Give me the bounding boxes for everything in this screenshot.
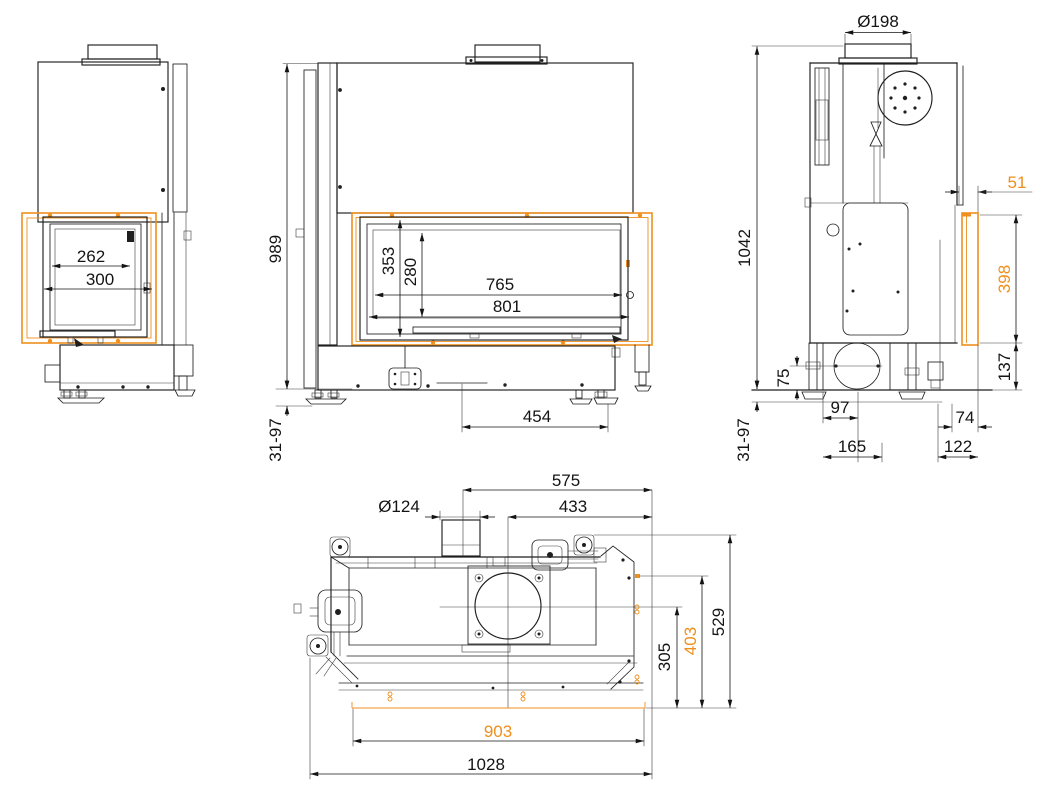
dim-top-frame-depth: 403 <box>681 627 700 655</box>
leveling-foot <box>306 399 346 404</box>
dim-top-total-width: 1028 <box>467 755 505 774</box>
door-handle <box>127 231 134 242</box>
dim-right-frame-height: 398 <box>995 265 1014 293</box>
dim-front-opening-height: 353 <box>379 247 398 275</box>
flue-stub <box>845 44 911 58</box>
dim-front-glass-width: 765 <box>486 275 514 294</box>
dim-top-flue-center-to-right: 575 <box>552 471 580 490</box>
dim-front-base-span: 454 <box>523 407 551 426</box>
flue-stub-top <box>442 520 480 556</box>
leveling-foot <box>175 390 195 396</box>
dim-front-leveling-range: 31-97 <box>266 418 285 461</box>
flue-stub <box>88 45 157 59</box>
side-panel <box>38 62 168 222</box>
dim-right-rear-span: 122 <box>944 437 972 456</box>
dim-right-leveling-range: 31-97 <box>734 418 753 461</box>
side-shield <box>843 203 908 335</box>
dim-top-total-depth: 529 <box>709 608 728 636</box>
view-right-side: Ø198 1042 <box>734 12 1032 462</box>
dim-right-total-height: 1042 <box>735 229 754 267</box>
dim-front-body-height: 989 <box>266 235 285 263</box>
dim-right-inlet-span: 165 <box>838 437 866 456</box>
dim-right-frame-bottom-height: 137 <box>995 353 1014 381</box>
glass-frame-outline <box>962 213 978 345</box>
corner-plate <box>601 546 634 689</box>
dim-right-rear-gap: 74 <box>956 408 975 427</box>
leveling-foot <box>802 392 826 399</box>
dim-top-outlet-to-front: 305 <box>655 643 674 671</box>
front-top-panel <box>337 63 633 213</box>
view-left-side: 262 300 <box>22 45 195 403</box>
dim-right-frame-depth: 51 <box>1008 173 1027 192</box>
drawing-page: 262 300 <box>0 0 1048 797</box>
view-front: 989 353 280 765 801 454 31-97 <box>266 45 652 462</box>
dim-left-glass-width: 262 <box>77 247 105 266</box>
dim-right-flue-diameter: Ø198 <box>857 12 899 31</box>
dim-right-inlet-center-height: 75 <box>774 369 793 388</box>
dim-top-outlet-center-to-right: 433 <box>559 497 587 516</box>
technical-drawing: 262 300 <box>0 0 1048 797</box>
leveling-foot <box>899 392 925 399</box>
dim-right-inlet-offset: 97 <box>831 398 850 417</box>
damper-knob <box>389 368 421 389</box>
door-sill <box>40 331 115 337</box>
dim-front-glass-height: 280 <box>401 258 420 286</box>
counterweight-rail <box>815 68 829 165</box>
dim-front-door-width: 801 <box>493 297 521 316</box>
flue-stub <box>475 45 540 62</box>
cable-hook <box>871 122 881 134</box>
air-slider-rail <box>413 327 620 333</box>
view-top: 575 Ø124 433 <box>294 471 736 779</box>
leveling-foot <box>58 398 104 403</box>
dim-top-flue-diameter: Ø124 <box>378 497 420 516</box>
dim-top-frame-width: 903 <box>484 722 512 741</box>
dim-left-door-width: 300 <box>86 270 114 289</box>
